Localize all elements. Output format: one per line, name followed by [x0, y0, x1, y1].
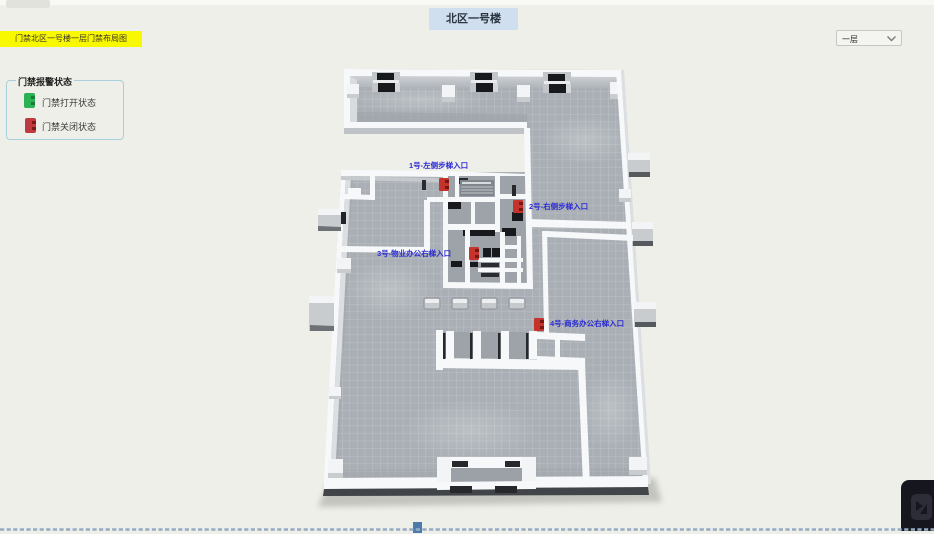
svg-text:2号-右侧步梯入口: 2号-右侧步梯入口 [529, 201, 588, 211]
svg-text:3号-物业办公右梯入口: 3号-物业办公右梯入口 [377, 248, 451, 258]
svg-text:1号-左侧步梯入口: 1号-左侧步梯入口 [409, 160, 468, 170]
svg-text:4号-商务办公右梯入口: 4号-商务办公右梯入口 [550, 318, 624, 328]
